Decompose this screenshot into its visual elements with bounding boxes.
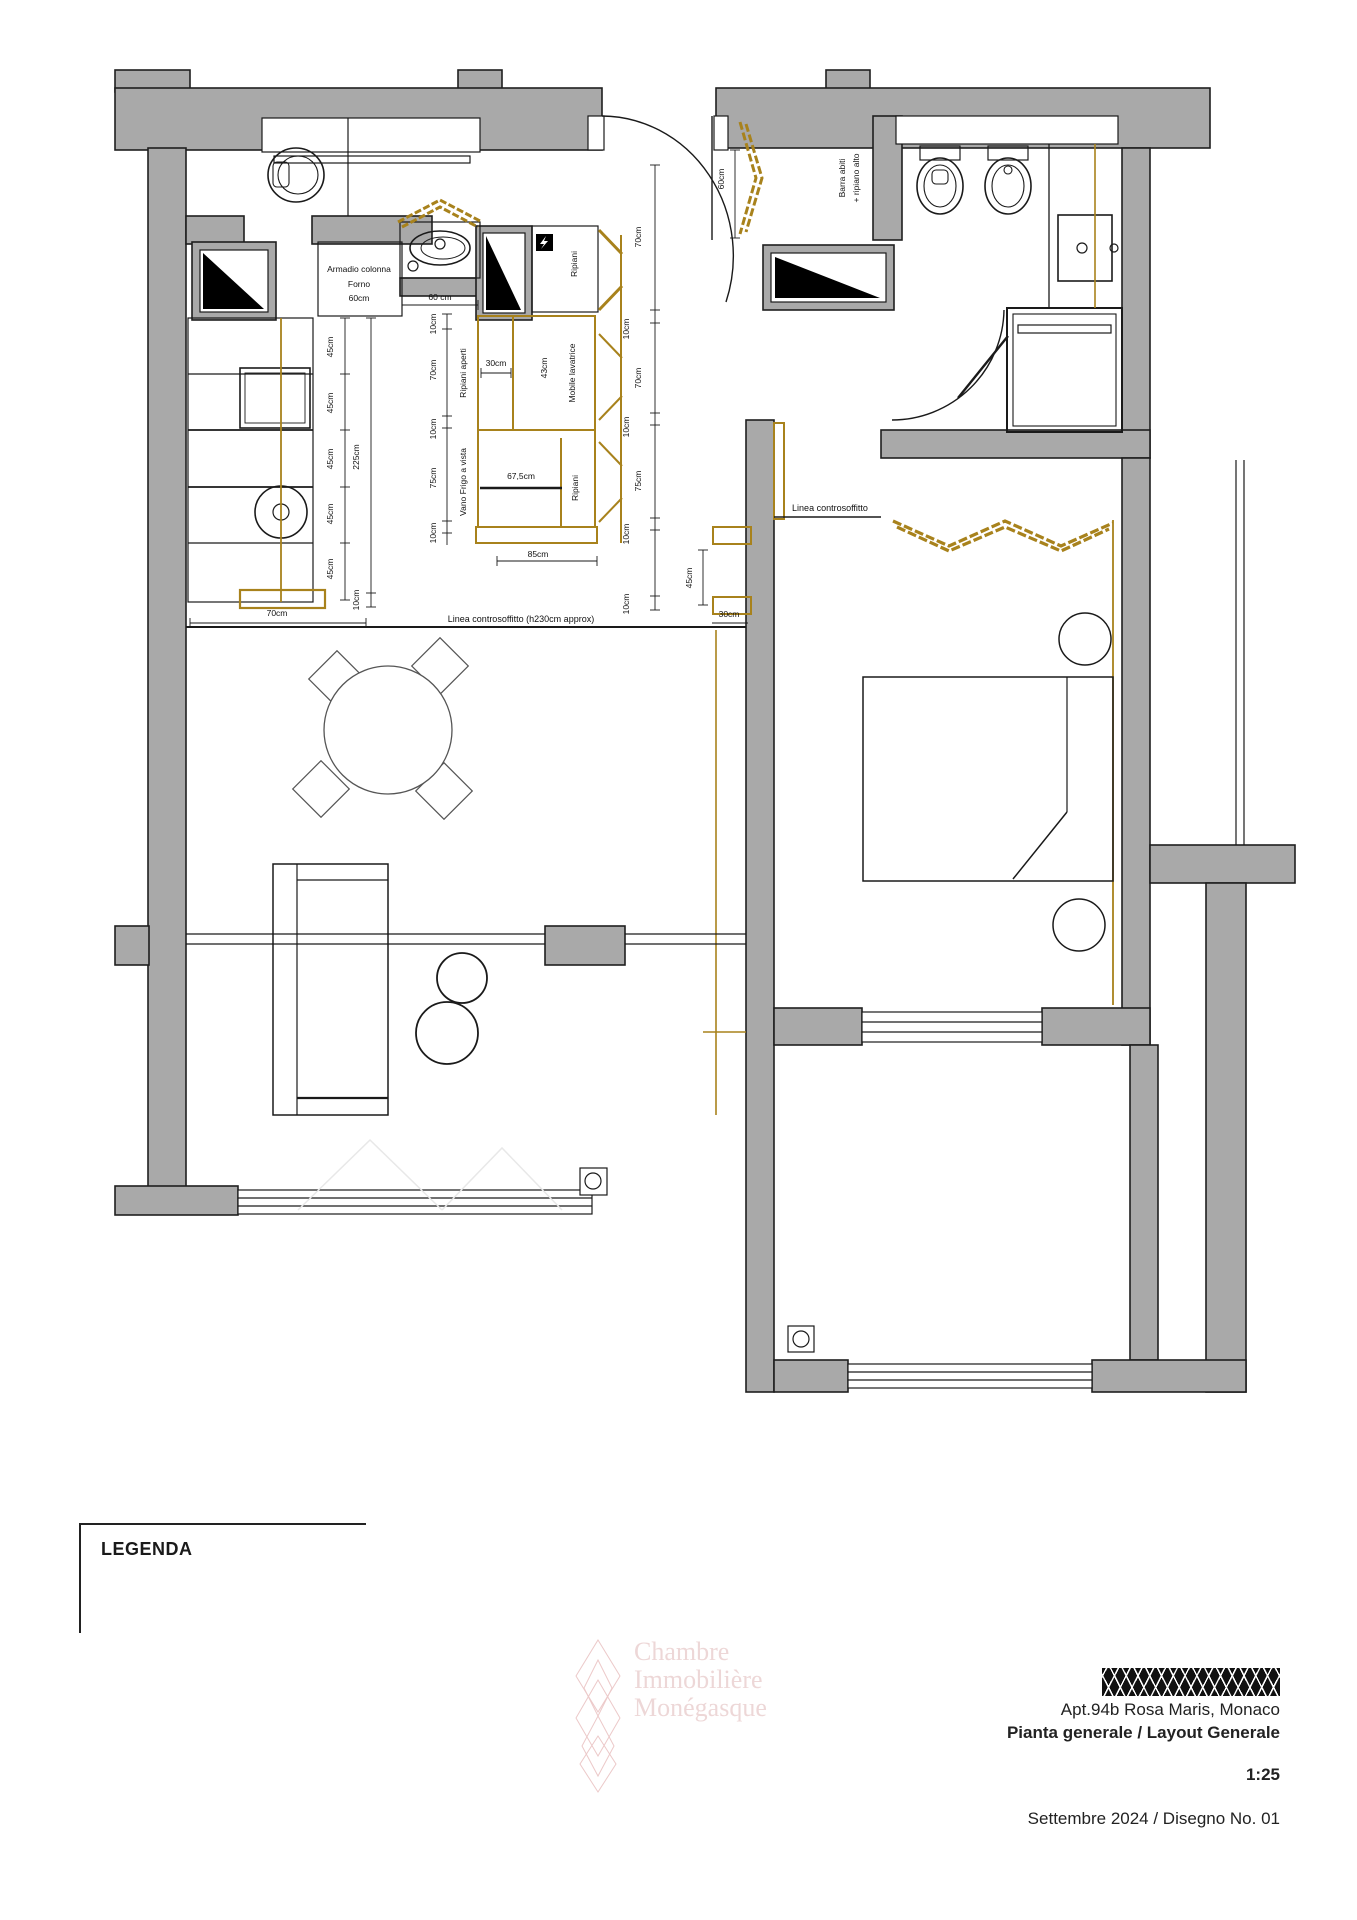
label-linea-controsoffitto-kitchen: Linea controsoffitto (h230cm approx) (448, 614, 594, 624)
dim-10cm: 10cm (621, 594, 631, 615)
dining-table (324, 666, 452, 794)
dim-wall-30cm: 30cm (719, 609, 740, 619)
side-table (437, 953, 487, 1003)
dim-counter-70cm: 70cm (267, 608, 288, 618)
redacted-logo-hatch (1102, 1668, 1280, 1696)
drawing-scale: 1:25 (850, 1765, 1280, 1785)
dim-225cm: 225cm (351, 444, 361, 470)
side-table (416, 1002, 478, 1064)
living-room (273, 638, 487, 1115)
wall-niches (262, 116, 1118, 163)
title-block: Apt.94b Rosa Maris, Monaco Pianta genera… (850, 1668, 1280, 1829)
dim-closet-60cm: 60cm (716, 169, 726, 190)
dim-45cm: 45cm (325, 504, 335, 525)
floor-drain (580, 1168, 607, 1195)
dim-frigo-67-5cm: 67,5cm (507, 471, 535, 481)
dim-43cm: 43cm (539, 358, 549, 379)
label-ripiani-aperti: Ripiani aperti (458, 348, 468, 398)
bathroom-door-leaf (958, 336, 1008, 398)
toilet (268, 148, 324, 202)
bathroom-left-fixtures (268, 148, 324, 202)
label-linea-controsoffitto-bedroom: Linea controsoffitto (792, 503, 868, 513)
dim-10cm: 10cm (621, 319, 631, 340)
drawing-date-number: Settembre 2024 / Disegno No. 01 (850, 1809, 1280, 1829)
dim-10cm: 10cm (428, 419, 438, 440)
dim-45cm: 45cm (684, 568, 694, 589)
label-ripiano-alto: + ripiano alto (851, 153, 861, 202)
label-armadio-colonna: Armadio colonna (327, 264, 391, 274)
legend-box: LEGENDA (79, 1523, 366, 1633)
label-barra-abiti: Barra abiti (837, 159, 847, 198)
bedroom-door-arc (892, 310, 1004, 420)
column-box (476, 226, 532, 320)
apartment-name: Apt.94b Rosa Maris, Monaco (850, 1700, 1280, 1720)
dim-10cm: 10cm (351, 590, 361, 611)
dim-70cm: 70cm (633, 368, 643, 389)
washbasin (1058, 215, 1118, 281)
dim-70cm: 70cm (428, 360, 438, 381)
dim-ripiani-30cm: 30cm (486, 358, 507, 368)
dim-10cm: 10cm (621, 417, 631, 438)
shower (1007, 308, 1122, 432)
column-box (192, 242, 276, 320)
drawing-title: Pianta generale / Layout Generale (850, 1723, 1280, 1743)
dim-10cm: 10cm (621, 524, 631, 545)
cooktop (240, 368, 310, 428)
gold-open-doors (599, 230, 622, 310)
column-box (763, 245, 894, 310)
bed (863, 677, 1113, 881)
floor-plan-sheet: Armadio colonnaForno60cm60 cm30cm67,5cm8… (0, 0, 1357, 1920)
label-mobile-lavatrice: Mobile lavatrice (567, 343, 577, 402)
dim-10cm: 10cm (428, 523, 438, 544)
label-ripiani-top: Ripiani (569, 251, 579, 277)
dim-45cm: 45cm (325, 393, 335, 414)
dim-block-85cm: 85cm (528, 549, 549, 559)
toilet (917, 146, 963, 214)
nightstand (1059, 613, 1111, 665)
label-forno: Forno (348, 279, 370, 289)
floor-drain (788, 1326, 814, 1352)
dim-45cm: 45cm (325, 449, 335, 470)
sofa (273, 864, 388, 1115)
dim-sink-60cm: 60 cm (428, 292, 451, 302)
wardrobe-hanging-rail (893, 521, 1113, 551)
dim-armadio-60cm: 60cm (349, 293, 370, 303)
bedroom (863, 521, 1113, 951)
dim-75cm: 75cm (633, 471, 643, 492)
label-vano-frigo: Vano Frigo a vista (458, 448, 468, 516)
bidet (985, 146, 1031, 214)
bathroom-right-fixtures (917, 144, 1122, 432)
kitchen-counter (188, 318, 313, 602)
dim-70cm: 70cm (633, 227, 643, 248)
electrical-panel-icon (536, 234, 553, 251)
dim-45cm: 45cm (325, 559, 335, 580)
dim-10cm: 10cm (428, 314, 438, 335)
label-ripiani-bottom: Ripiani (570, 475, 580, 501)
dim-75cm: 75cm (428, 468, 438, 489)
dim-45cm: 45cm (325, 337, 335, 358)
nightstand (1053, 899, 1105, 951)
legend-title: LEGENDA (101, 1539, 193, 1560)
